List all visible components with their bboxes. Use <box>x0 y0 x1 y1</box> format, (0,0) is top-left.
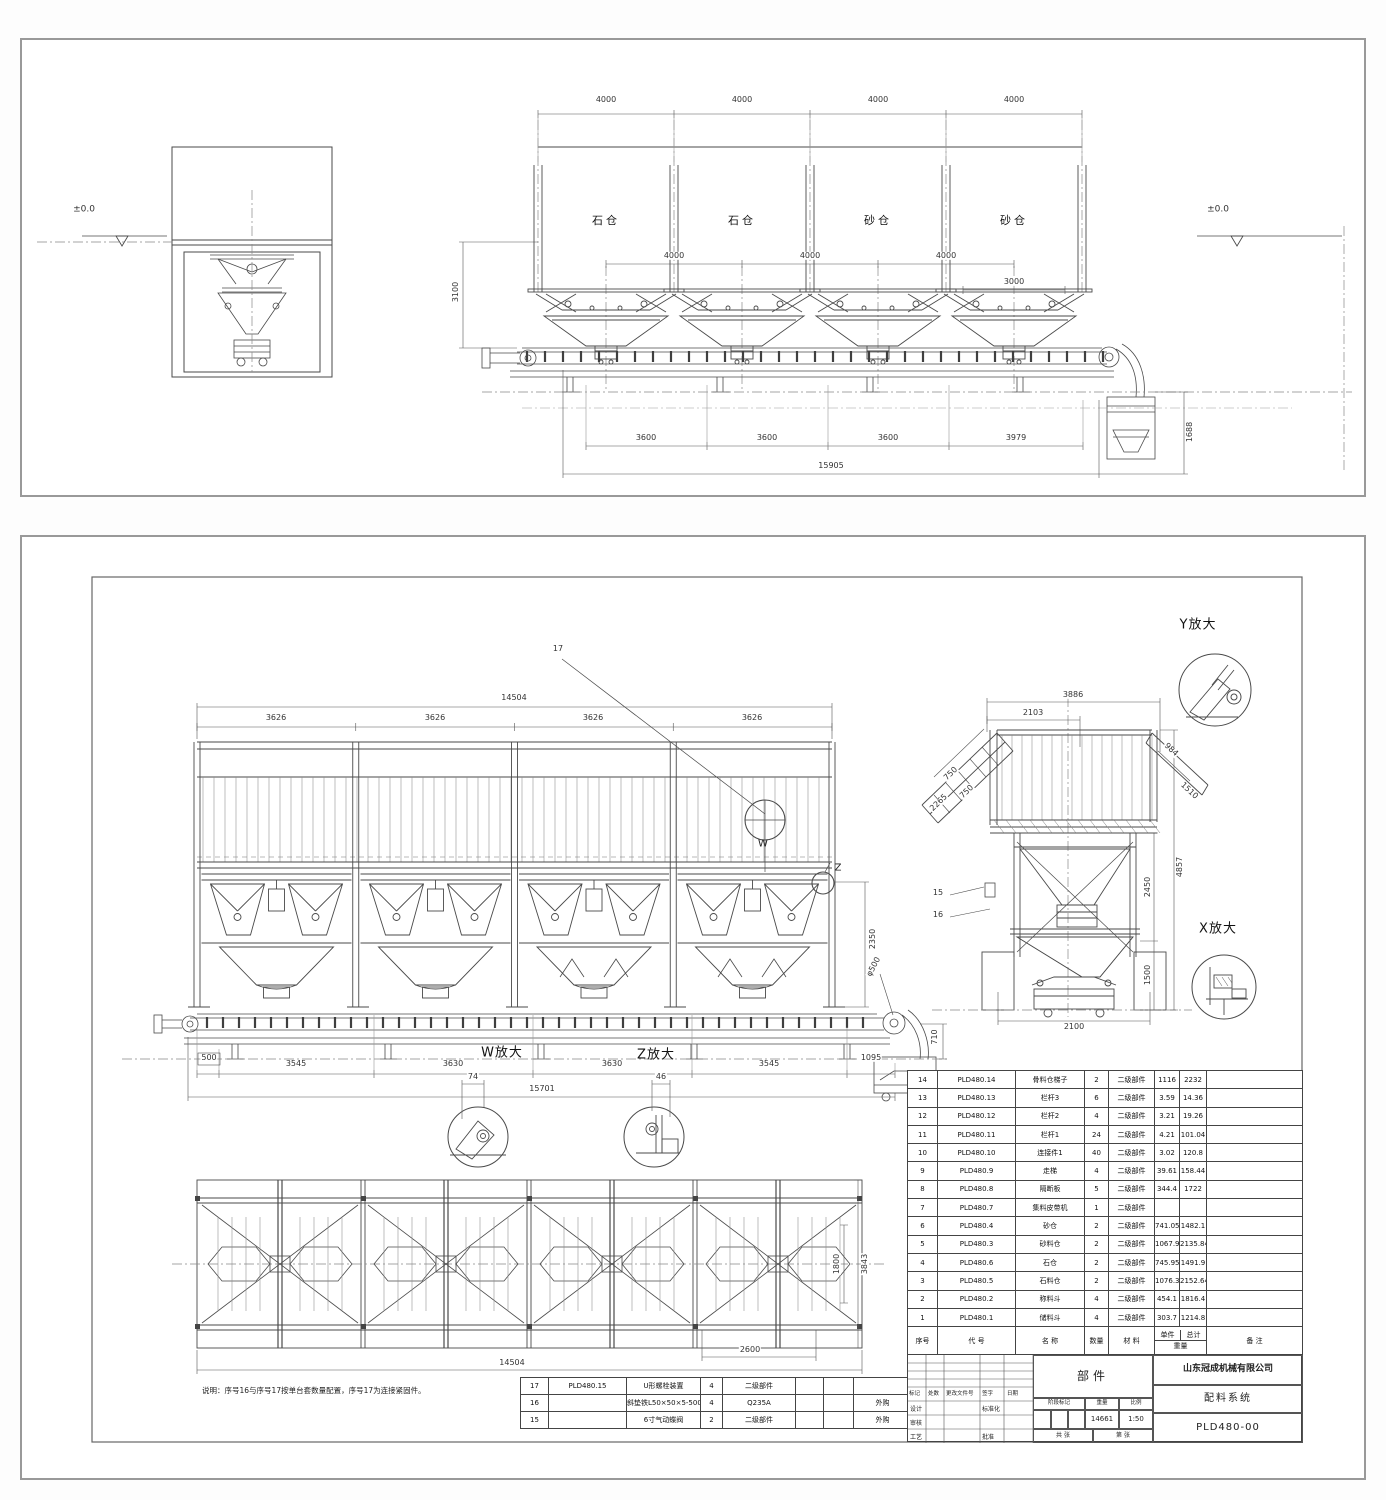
dim-label: 3545 <box>758 1060 780 1068</box>
bom-name: 石料仓 <box>1016 1272 1085 1290</box>
bom-header-code: 代 号 <box>938 1327 1016 1355</box>
bom-material: 二级部件 <box>1109 1180 1155 1198</box>
bom-unit-weight: 39.61 <box>1155 1162 1180 1180</box>
bom-material: 二级部件 <box>1109 1107 1155 1125</box>
bom-remark <box>1207 1253 1303 1271</box>
bom-total-weight: 1491.9 <box>1180 1253 1207 1271</box>
bom-code: PLD480.2 <box>938 1290 1016 1308</box>
bom-total-weight: 158.44 <box>1180 1162 1207 1180</box>
bom-row: 10 PLD480.10 连接件1 40 二级部件 3.02 120.8 <box>908 1144 1303 1162</box>
detail-y-title: Y放大 <box>1180 614 1217 633</box>
bom-qty: 4 <box>701 1378 723 1395</box>
bom-code <box>549 1412 627 1429</box>
bom-no: 11 <box>908 1125 938 1143</box>
bom-name: 栏杆2 <box>1016 1107 1085 1125</box>
field-sign: 签字 <box>982 1389 993 1397</box>
drawing-note: 说明：序号16与序号17按单台套数量配置，序号17为连接紧固件。 <box>202 1385 426 1396</box>
dim-label: 2100 <box>1063 1023 1085 1031</box>
dim-label: 4000 <box>799 252 821 260</box>
bom-code: PLD480.5 <box>938 1272 1016 1290</box>
dim-label: 15905 <box>817 462 844 470</box>
dimension-lines <box>459 110 1188 478</box>
bom-header-unit: 单件 <box>1155 1330 1181 1340</box>
bottom-panel: 14504 3626 3626 3626 3626 17 W Z 2350 φ5… <box>20 535 1366 1480</box>
bom-no: 1 <box>908 1308 938 1326</box>
bom-code: PLD480.9 <box>938 1162 1016 1180</box>
sheet-no-label: 第 张 <box>1093 1429 1153 1443</box>
dim-label: 2450 <box>1144 876 1152 898</box>
field-craft: 工艺 <box>910 1432 922 1441</box>
dim-label: 14504 <box>500 694 527 702</box>
dim-label: 3600 <box>877 434 899 442</box>
dim-label: 1095 <box>860 1054 882 1062</box>
dim-label: 710 <box>931 1028 939 1045</box>
bom-total-weight: 120.8 <box>1180 1144 1207 1162</box>
title-block: 标记 处数 更改文件号 签字 日期 设计 标准化 审核 工艺 批准 部件 阶段标… <box>907 1354 1302 1442</box>
bom-header-weight: 单件 总计 重量 <box>1155 1330 1206 1351</box>
weight-label: 重量 <box>1085 1398 1119 1410</box>
bom-name: 连接件1 <box>1016 1144 1085 1162</box>
bom-qty: 40 <box>1085 1144 1109 1162</box>
bom-qty: 4 <box>1085 1107 1109 1125</box>
bom-remark <box>1207 1089 1303 1107</box>
bom-qty: 2 <box>1085 1272 1109 1290</box>
belt-conveyor <box>482 344 1155 459</box>
dim-label: 4000 <box>731 96 753 104</box>
bom-unit-weight <box>796 1378 824 1395</box>
bom-unit-weight: 3.21 <box>1155 1107 1180 1125</box>
bom-code: PLD480.13 <box>938 1089 1016 1107</box>
dim-label: 3100 <box>452 281 460 303</box>
bom-total-weight: 19.26 <box>1180 1107 1207 1125</box>
dim-label: 4000 <box>935 252 957 260</box>
bom-material: 二级部件 <box>723 1378 796 1395</box>
bom-qty: 2 <box>701 1412 723 1429</box>
bom-remark <box>854 1378 912 1395</box>
bom-code: PLD480.15 <box>549 1378 627 1395</box>
dim-label: 4000 <box>595 96 617 104</box>
dim-label: 4000 <box>867 96 889 104</box>
bom-no: 6 <box>908 1217 938 1235</box>
bom-remark: 外购 <box>854 1395 912 1412</box>
bin-label: 石仓 <box>728 212 756 228</box>
bom-code: PLD480.4 <box>938 1217 1016 1235</box>
bom-total-weight: 2232 <box>1180 1071 1207 1089</box>
bom-row: 6 PLD480.4 砂仓 2 二级部件 741.05 1482.1 <box>908 1217 1303 1235</box>
bom-material: 二级部件 <box>1109 1144 1155 1162</box>
bom-no: 8 <box>908 1180 938 1198</box>
dim-label: 3000 <box>1003 278 1025 286</box>
dim-label: 1800 <box>833 1253 841 1275</box>
bom-material: 二级部件 <box>1109 1162 1155 1180</box>
sheets-total-label: 共 张 <box>1033 1429 1093 1443</box>
bom-code: PLD480.12 <box>938 1107 1016 1125</box>
bom-table: 14 PLD480.14 骨料仓梯子 2 二级部件 1116 2232 13 P… <box>907 1070 1303 1355</box>
bom-remark <box>1207 1144 1303 1162</box>
bom-qty: 5 <box>1085 1180 1109 1198</box>
bom-material: 二级部件 <box>1109 1253 1155 1271</box>
bom-code: PLD480.10 <box>938 1144 1016 1162</box>
stage-cell <box>1068 1410 1085 1429</box>
bom-total-weight <box>824 1378 854 1395</box>
dim-label: 15701 <box>528 1085 555 1093</box>
dim-label: 4000 <box>663 252 685 260</box>
bom-qty: 4 <box>1085 1290 1109 1308</box>
dim-label: 1500 <box>1144 964 1152 986</box>
bom-unit-weight <box>796 1412 824 1429</box>
bom-no: 3 <box>908 1272 938 1290</box>
field-count: 处数 <box>928 1389 939 1397</box>
dim-label: 3979 <box>1005 434 1027 442</box>
weight-value: 14661 <box>1085 1410 1119 1429</box>
bom-row: 9 PLD480.9 走梯 4 二级部件 39.61 158.44 <box>908 1162 1303 1180</box>
item-leader-label: 17 <box>552 645 564 653</box>
drawing-sheet: { "top_view": { "datum_left": "±0.0", "d… <box>0 0 1386 1500</box>
detail-z-mark: Z <box>835 863 842 874</box>
drawing-number: PLD480-00 <box>1153 1413 1303 1443</box>
bom-material: 二级部件 <box>1109 1199 1155 1217</box>
dim-label: 14504 <box>498 1359 525 1367</box>
bom-no: 15 <box>521 1412 549 1429</box>
bom-qty: 6 <box>1085 1089 1109 1107</box>
bom-total-weight: 1214.8 <box>1180 1308 1207 1326</box>
bom-qty: 4 <box>701 1395 723 1412</box>
bom-no: 14 <box>908 1071 938 1089</box>
bom-material: 二级部件 <box>1109 1272 1155 1290</box>
dim-label: 3626 <box>265 714 287 722</box>
bom-material: 二级部件 <box>1109 1125 1155 1143</box>
bom-no: 17 <box>521 1378 549 1395</box>
field-check: 审核 <box>910 1418 922 1427</box>
bom-name: 集料皮带机 <box>1016 1199 1085 1217</box>
bom-header-material: 材 料 <box>1109 1327 1155 1355</box>
datum-right-label: ±0.0 <box>1206 205 1230 214</box>
dim-label: 3600 <box>635 434 657 442</box>
bom-no: 2 <box>908 1290 938 1308</box>
bom-total-weight: 2135.84 <box>1180 1235 1207 1253</box>
bom-unit-weight: 741.05 <box>1155 1217 1180 1235</box>
dim-label: 1688 <box>1186 421 1194 443</box>
bom-extra-row: 15 6寸气动蝶阀 2 二级部件 外购 <box>521 1412 912 1429</box>
bom-total-weight: 101.04 <box>1180 1125 1207 1143</box>
bom-remark: 外购 <box>854 1412 912 1429</box>
signature-grid-lines <box>908 1355 1033 1443</box>
bom-no: 10 <box>908 1144 938 1162</box>
bom-name: 隔断板 <box>1016 1180 1085 1198</box>
side-section-view <box>37 147 332 377</box>
bom-row: 4 PLD480.6 石仓 2 二级部件 745.95 1491.9 <box>908 1253 1303 1271</box>
bom-material: 二级部件 <box>1109 1217 1155 1235</box>
bom-name: 斜垫铁L50×50×5-500 <box>627 1395 701 1412</box>
bom-header-name: 名 称 <box>1016 1327 1085 1355</box>
bom-code: PLD480.7 <box>938 1199 1016 1217</box>
bom-code: PLD480.1 <box>938 1308 1016 1326</box>
bom-material: 二级部件 <box>1109 1071 1155 1089</box>
bom-header-no: 序号 <box>908 1327 938 1355</box>
bom-remark <box>1207 1272 1303 1290</box>
bom-extra-row: 17 PLD480.15 U形螺栓装置 4 二级部件 <box>521 1378 912 1395</box>
bom-code: PLD480.14 <box>938 1071 1016 1089</box>
bom-name: 砂仓 <box>1016 1217 1085 1235</box>
bin-label: 砂仓 <box>1000 212 1028 228</box>
bom-no: 12 <box>908 1107 938 1125</box>
detail-z <box>624 1080 684 1167</box>
detail-y <box>1179 654 1251 726</box>
bom-total-weight: 1722 <box>1180 1180 1207 1198</box>
part-type-label: 部件 <box>1033 1355 1153 1398</box>
bom-remark <box>1207 1107 1303 1125</box>
bom-unit-weight <box>1155 1199 1180 1217</box>
bom-name: 6寸气动蝶阀 <box>627 1412 701 1429</box>
field-approve: 批准 <box>982 1432 994 1441</box>
bom-material: 二级部件 <box>1109 1235 1155 1253</box>
detail-x <box>1192 955 1256 1019</box>
bom-unit-weight <box>796 1395 824 1412</box>
detail-w <box>448 1080 508 1167</box>
bom-unit-weight: 3.59 <box>1155 1089 1180 1107</box>
detail-x-title: X放大 <box>1199 918 1237 937</box>
dim-label: 2103 <box>1022 709 1044 717</box>
field-mark: 标记 <box>909 1389 920 1397</box>
bom-remark <box>1207 1199 1303 1217</box>
plan-view <box>172 1180 884 1374</box>
bom-unit-weight: 3.02 <box>1155 1144 1180 1162</box>
bins-elevation-view <box>459 110 1352 478</box>
bin-label: 砂仓 <box>864 212 892 228</box>
dim-label: 500 <box>200 1054 217 1062</box>
bom-unit-weight: 1116 <box>1155 1071 1180 1089</box>
bom-code: PLD480.3 <box>938 1235 1016 1253</box>
dim-label: 3600 <box>756 434 778 442</box>
dim-label: 4000 <box>1003 96 1025 104</box>
scale-label: 比例 <box>1119 1398 1153 1410</box>
bom-remark <box>1207 1308 1303 1326</box>
scale-value: 1:50 <box>1119 1410 1153 1429</box>
dim-label: 4857 <box>1176 856 1184 878</box>
bom-name: 储料斗 <box>1016 1308 1085 1326</box>
field-change-doc: 更改文件号 <box>946 1389 974 1397</box>
bom-name: 石仓 <box>1016 1253 1085 1271</box>
field-design: 设计 <box>910 1404 922 1413</box>
bom-header-weight-label: 重量 <box>1155 1341 1206 1351</box>
bom-no: 7 <box>908 1199 938 1217</box>
top-panel: ±0.0 4000 4000 4000 4000 石仓 石仓 砂仓 砂仓 400… <box>20 38 1366 497</box>
bom-total-weight: 2152.64 <box>1180 1272 1207 1290</box>
bin-label: 石仓 <box>592 212 620 228</box>
bom-remark <box>1207 1071 1303 1089</box>
bom-qty: 4 <box>1085 1162 1109 1180</box>
bom-extra-table: 17 PLD480.15 U形螺栓装置 4 二级部件 16 斜垫铁L50×50×… <box>520 1377 912 1429</box>
bom-row: 7 PLD480.7 集料皮带机 1 二级部件 <box>908 1199 1303 1217</box>
bom-row: 13 PLD480.13 栏杆3 6 二级部件 3.59 14.36 <box>908 1089 1303 1107</box>
dim-label: 3630 <box>601 1060 623 1068</box>
bom-name: 称料斗 <box>1016 1290 1085 1308</box>
bom-unit-weight: 303.7 <box>1155 1308 1180 1326</box>
field-standardize: 标准化 <box>982 1404 1000 1413</box>
bom-name: 栏杆3 <box>1016 1089 1085 1107</box>
bom-row: 2 PLD480.2 称料斗 4 二级部件 454.1 1816.4 <box>908 1290 1303 1308</box>
bom-material: 二级部件 <box>1109 1290 1155 1308</box>
bom-remark <box>1207 1125 1303 1143</box>
bom-no: 5 <box>908 1235 938 1253</box>
bom-name: 走梯 <box>1016 1162 1085 1180</box>
bom-no: 16 <box>521 1395 549 1412</box>
bom-total-weight: 1482.1 <box>1180 1217 1207 1235</box>
bom-name: 砂料仓 <box>1016 1235 1085 1253</box>
bom-header-remark: 备 注 <box>1207 1327 1303 1355</box>
dimension-lines <box>188 703 947 1101</box>
bom-name: 栏杆1 <box>1016 1125 1085 1143</box>
bom-no: 4 <box>908 1253 938 1271</box>
stage-mark-label: 阶段标记 <box>1033 1398 1085 1410</box>
bom-code: PLD480.6 <box>938 1253 1016 1271</box>
detail-z-title: Z放大 <box>637 1044 675 1063</box>
bom-qty: 2 <box>1085 1217 1109 1235</box>
bom-code: PLD480.8 <box>938 1180 1016 1198</box>
bom-remark <box>1207 1235 1303 1253</box>
bom-header-row: 序号 代 号 名 称 数量 材 料 单件 总计 重量 备 注 <box>908 1327 1303 1355</box>
bom-qty: 2 <box>1085 1071 1109 1089</box>
bom-total-weight <box>824 1395 854 1412</box>
detail-w-mark: W <box>758 839 768 850</box>
bom-row: 14 PLD480.14 骨料仓梯子 2 二级部件 1116 2232 <box>908 1071 1303 1089</box>
product-name: 配料系统 <box>1153 1385 1303 1413</box>
bom-row: 12 PLD480.12 栏杆2 4 二级部件 3.21 19.26 <box>908 1107 1303 1125</box>
bom-total-weight <box>824 1412 854 1429</box>
bom-name: U形螺栓装置 <box>627 1378 701 1395</box>
dim-label: 74 <box>467 1073 479 1081</box>
dim-label: 3626 <box>582 714 604 722</box>
dim-label: 3626 <box>741 714 763 722</box>
dim-label: 46 <box>655 1073 667 1081</box>
bom-code: PLD480.11 <box>938 1125 1016 1143</box>
bom-remark <box>1207 1162 1303 1180</box>
bom-row: 1 PLD480.1 储料斗 4 二级部件 303.7 1214.8 <box>908 1308 1303 1326</box>
bom-header-total: 总计 <box>1181 1330 1206 1340</box>
bom-row: 5 PLD480.3 砂料仓 2 二级部件 1067.92 2135.84 <box>908 1235 1303 1253</box>
stage-cell <box>1051 1410 1068 1429</box>
bom-header-qty: 数量 <box>1085 1327 1109 1355</box>
bom-row: 3 PLD480.5 石料仓 2 二级部件 1076.32 2152.64 <box>908 1272 1303 1290</box>
bom-qty: 4 <box>1085 1308 1109 1326</box>
bom-material: 二级部件 <box>1109 1089 1155 1107</box>
item-leader-label: 15 <box>932 889 944 897</box>
bom-name: 骨料仓梯子 <box>1016 1071 1085 1089</box>
bom-unit-weight: 1067.92 <box>1155 1235 1180 1253</box>
dim-label: 3630 <box>442 1060 464 1068</box>
bom-qty: 1 <box>1085 1199 1109 1217</box>
bom-extra-row: 16 斜垫铁L50×50×5-500 4 Q235A 外购 <box>521 1395 912 1412</box>
bom-no: 13 <box>908 1089 938 1107</box>
bom-unit-weight: 4.21 <box>1155 1125 1180 1143</box>
bom-material: 二级部件 <box>723 1412 796 1429</box>
bom-remark <box>1207 1290 1303 1308</box>
bom-total-weight: 14.36 <box>1180 1089 1207 1107</box>
dim-label: 3626 <box>424 714 446 722</box>
bom-qty: 2 <box>1085 1235 1109 1253</box>
bom-unit-weight: 454.1 <box>1155 1290 1180 1308</box>
top-elevation-drawing <box>22 40 1364 495</box>
bom-row: 8 PLD480.8 隔断板 5 二级部件 344.4 1722 <box>908 1180 1303 1198</box>
bom-remark <box>1207 1180 1303 1198</box>
dim-label: 3843 <box>861 1253 869 1275</box>
dim-label: 2350 <box>869 928 877 950</box>
dim-label: 2600 <box>739 1346 761 1354</box>
field-date: 日期 <box>1007 1389 1018 1397</box>
bom-qty: 24 <box>1085 1125 1109 1143</box>
bom-total-weight: 1816.4 <box>1180 1290 1207 1308</box>
stage-cell <box>1033 1410 1051 1429</box>
bom-unit-weight: 344.4 <box>1155 1180 1180 1198</box>
bom-material: Q235A <box>723 1395 796 1412</box>
datum-left-label: ±0.0 <box>72 205 96 214</box>
company-name: 山东冠成机械有限公司 <box>1153 1355 1303 1385</box>
bom-unit-weight: 745.95 <box>1155 1253 1180 1271</box>
dim-label: 3545 <box>285 1060 307 1068</box>
detail-w-title: W放大 <box>481 1042 523 1061</box>
bom-no: 9 <box>908 1162 938 1180</box>
bom-unit-weight: 1076.32 <box>1155 1272 1180 1290</box>
bom-qty: 2 <box>1085 1253 1109 1271</box>
item-leader-label: 16 <box>932 911 944 919</box>
bom-material: 二级部件 <box>1109 1308 1155 1326</box>
bom-row: 11 PLD480.11 栏杆1 24 二级部件 4.21 101.04 <box>908 1125 1303 1143</box>
bom-code <box>549 1395 627 1412</box>
bom-remark <box>1207 1217 1303 1235</box>
bom-total-weight <box>1180 1199 1207 1217</box>
dim-label: 3886 <box>1062 691 1084 699</box>
